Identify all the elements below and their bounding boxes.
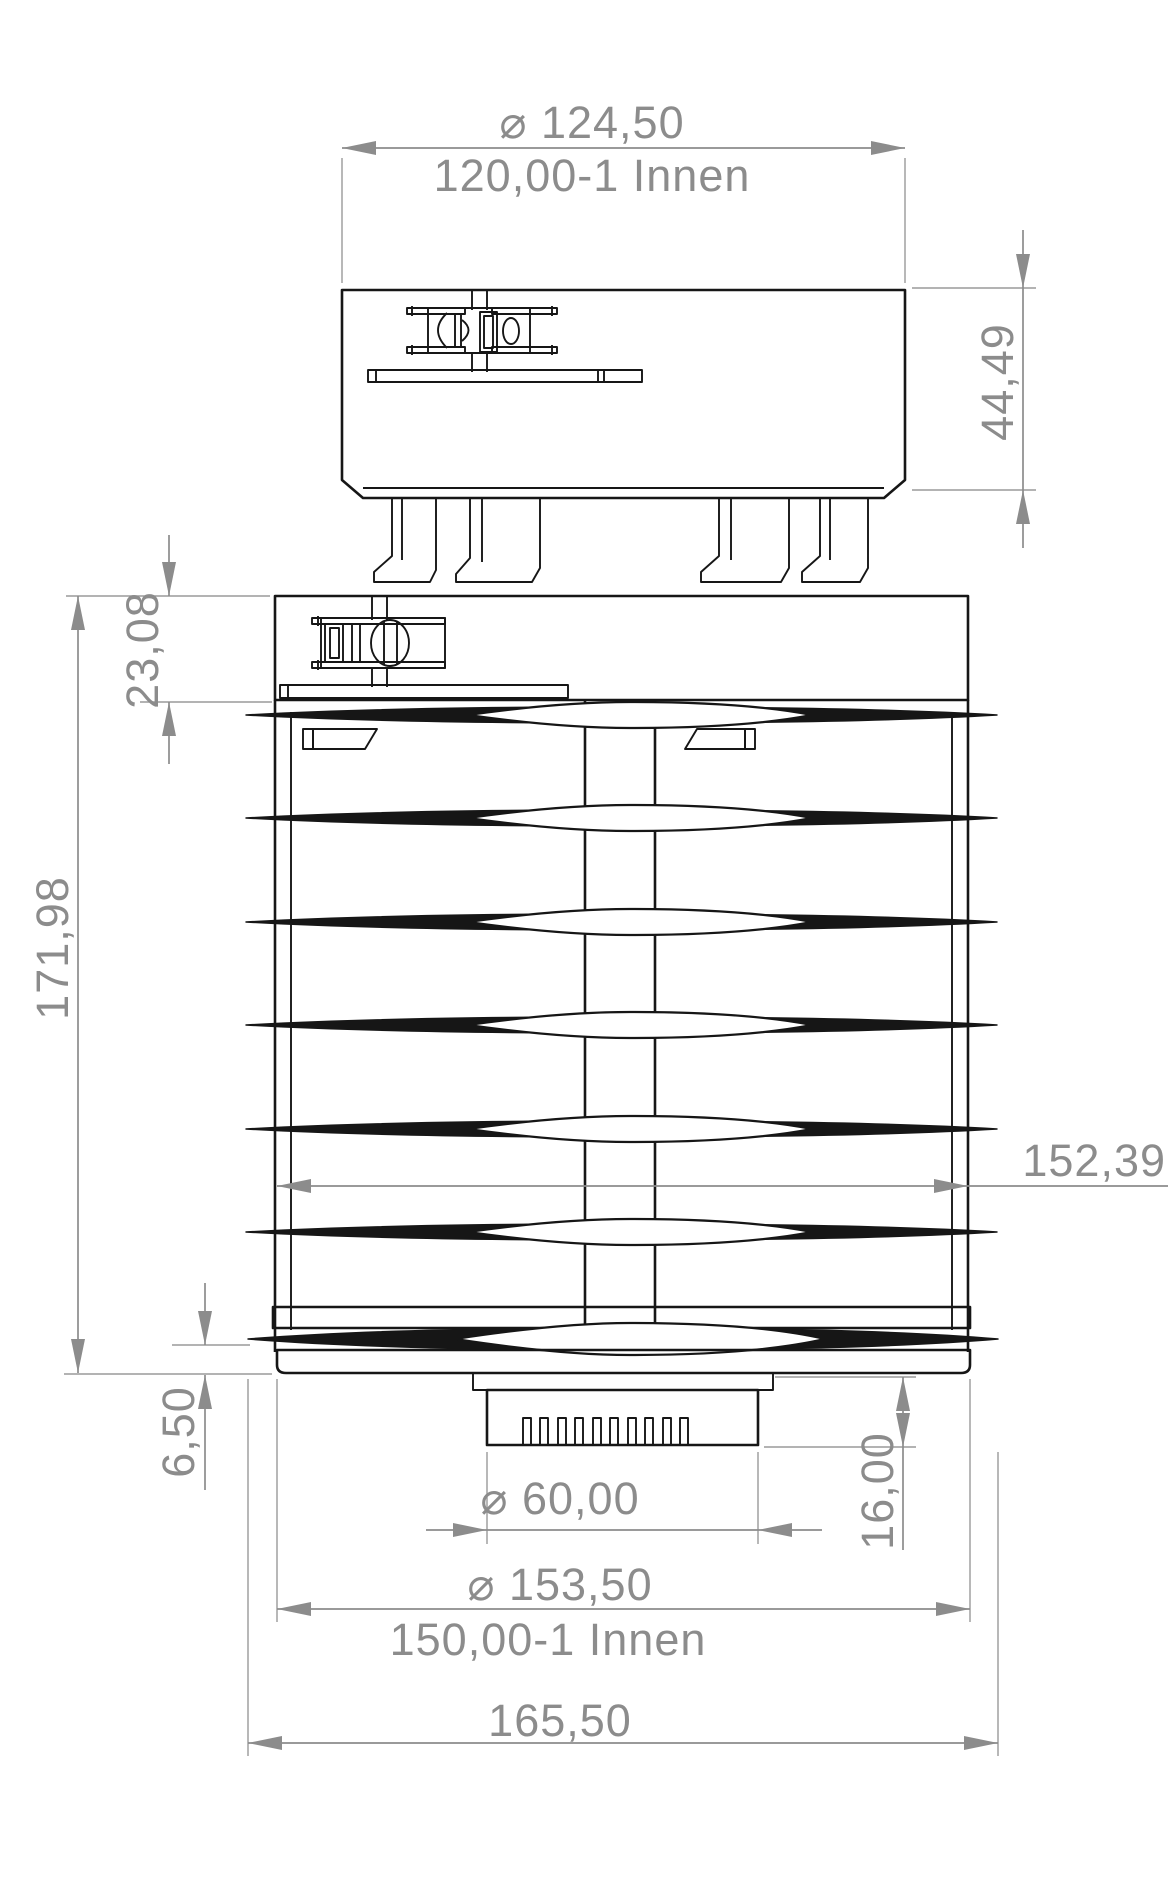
screw-head bbox=[371, 620, 409, 666]
dim-label: 171,98 bbox=[27, 876, 78, 1020]
top-view bbox=[342, 290, 905, 582]
screw-hole bbox=[503, 318, 519, 344]
foot-4 bbox=[802, 498, 868, 582]
dim-collar-height: 23,08 bbox=[66, 535, 272, 764]
top-housing-outline bbox=[342, 290, 905, 498]
dim-body-height: 171,98 bbox=[27, 596, 272, 1374]
dim-label: 150,00-1 Innen bbox=[390, 1614, 707, 1665]
clamp-cross-bar bbox=[368, 370, 642, 382]
dim-top-height: 44,49 bbox=[912, 230, 1036, 548]
dim-label: 6,50 bbox=[153, 1386, 204, 1478]
clamp-half-circle bbox=[462, 320, 469, 341]
foot-1 bbox=[374, 498, 436, 582]
clamp-cross-bar bbox=[280, 685, 568, 698]
dim-label: 23,08 bbox=[117, 591, 168, 709]
dim-label: ⌀ 124,50 bbox=[499, 97, 684, 148]
dim-label: 16,00 bbox=[852, 1432, 903, 1550]
arrow-right-icon bbox=[453, 1523, 487, 1537]
base-assembly bbox=[248, 1307, 998, 1373]
clamp-jaw-arc bbox=[438, 313, 447, 348]
arrow-right-icon bbox=[936, 1602, 970, 1616]
arrow-up-icon bbox=[71, 596, 85, 630]
foot-2 bbox=[456, 498, 540, 582]
arrow-down-icon bbox=[1016, 254, 1030, 288]
dim-label: 44,49 bbox=[972, 323, 1023, 441]
arrow-down-icon bbox=[71, 1339, 85, 1373]
dim-label: 120,00-1 Innen bbox=[434, 150, 751, 201]
foot-3 bbox=[701, 498, 789, 582]
arrow-up-icon bbox=[896, 1377, 910, 1411]
front-view bbox=[246, 596, 998, 1445]
arrow-right-icon bbox=[871, 141, 905, 155]
dim-body-diameter: 152,39 bbox=[277, 1135, 1168, 1193]
technical-drawing: ⌀ 124,50 120,00-1 Innen 44,49 23,08 bbox=[0, 0, 1170, 1890]
top-mounting-feet bbox=[374, 498, 868, 582]
latch-details bbox=[303, 729, 755, 749]
dim-top-diameter: ⌀ 124,50 120,00-1 Innen bbox=[342, 97, 905, 283]
clamp-screw-block bbox=[480, 312, 497, 352]
front-clamp-bracket bbox=[280, 596, 568, 698]
top-clamp-bracket bbox=[368, 290, 642, 382]
arrow-left-icon bbox=[277, 1179, 311, 1193]
fin-stack bbox=[246, 702, 997, 1245]
dim-label: ⌀ 153,50 bbox=[467, 1559, 652, 1610]
arrow-right-icon bbox=[934, 1179, 968, 1193]
dim-label: ⌀ 60,00 bbox=[480, 1473, 639, 1524]
connector-teeth bbox=[523, 1418, 688, 1445]
arrow-right-icon bbox=[964, 1736, 998, 1750]
arrow-up-icon bbox=[1016, 490, 1030, 524]
arrow-left-icon bbox=[758, 1523, 792, 1537]
arrow-left-icon bbox=[342, 141, 376, 155]
dim-connector-height: 16,00 bbox=[764, 1377, 916, 1550]
connector-step bbox=[473, 1373, 773, 1390]
dim-connector-diameter: ⌀ 60,00 bbox=[426, 1452, 822, 1544]
dim-base-lip: 6,50 bbox=[153, 1283, 250, 1490]
drawing-sheet: ⌀ 124,50 120,00-1 Innen 44,49 23,08 bbox=[0, 0, 1170, 1890]
dim-label: 165,50 bbox=[488, 1695, 632, 1746]
arrow-down-icon bbox=[162, 562, 176, 596]
arrow-down-icon bbox=[198, 1311, 212, 1345]
bottom-connector bbox=[473, 1373, 773, 1445]
arrow-left-icon bbox=[277, 1602, 311, 1616]
dim-label: 152,39 bbox=[1022, 1135, 1166, 1186]
arrow-left-icon bbox=[248, 1736, 282, 1750]
